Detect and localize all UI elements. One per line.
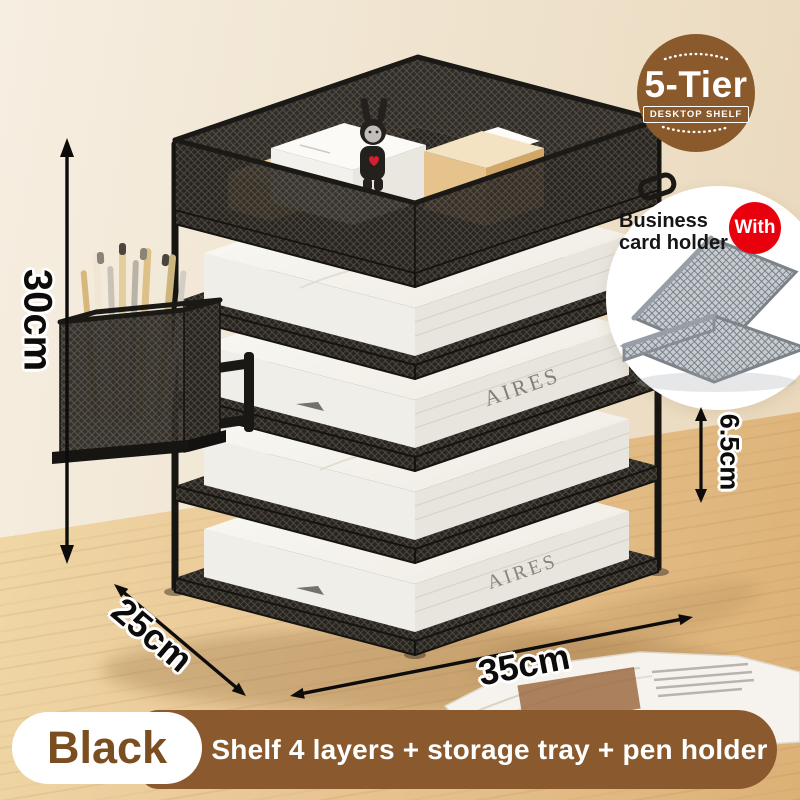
description-text: Shelf 4 layers + storage tray + pen hold…	[211, 734, 767, 766]
color-label: Black	[47, 722, 167, 774]
height-dimension-label: 30cm	[15, 269, 60, 371]
tier-height-dimension-label: 6.5cm	[714, 414, 745, 491]
color-pill: Black	[12, 712, 202, 784]
dimension-arrows	[0, 0, 800, 800]
description-bar: Shelf 4 layers + storage tray + pen hold…	[140, 710, 777, 789]
height-dimension-arrow	[60, 138, 74, 564]
tier-height-dimension-arrow	[695, 407, 707, 503]
product-photo-scene: AIRES	[0, 0, 800, 800]
